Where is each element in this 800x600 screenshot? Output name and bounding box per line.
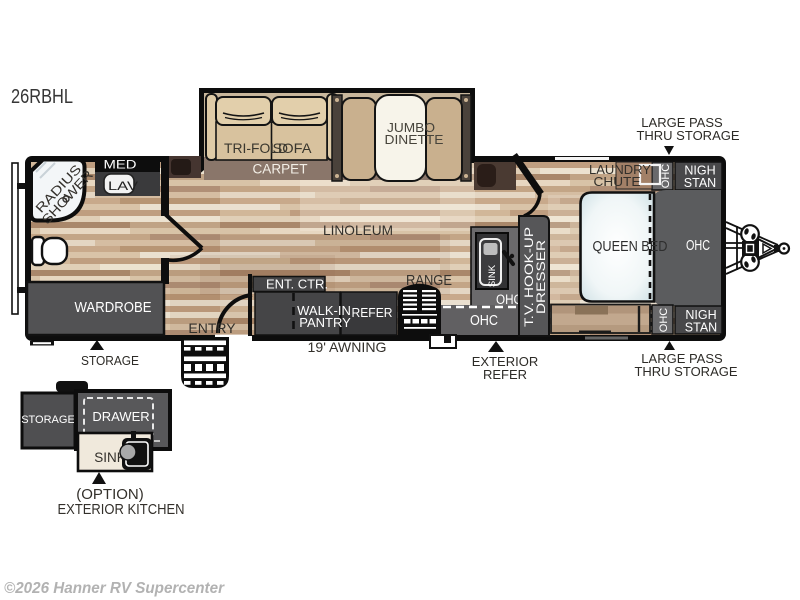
svg-text:SINK: SINK	[487, 264, 498, 287]
svg-text:QUEEN BED: QUEEN BED	[593, 239, 668, 255]
svg-text:OHC: OHC	[658, 308, 670, 333]
svg-text:REFER: REFER	[352, 305, 393, 320]
svg-text:©2026 Hanner RV Supercenter: ©2026 Hanner RV Supercenter	[4, 580, 225, 597]
svg-text:SOFA: SOFA	[273, 140, 313, 156]
svg-text:OHC: OHC	[470, 313, 498, 329]
svg-text:26RBHL: 26RBHL	[11, 86, 73, 108]
svg-text:DRESSER: DRESSER	[534, 240, 548, 314]
svg-text:THRU STORAGE: THRU STORAGE	[634, 364, 737, 379]
svg-text:STORAGE: STORAGE	[21, 414, 75, 426]
svg-text:ENTRY: ENTRY	[188, 320, 236, 336]
svg-text:PANTRY: PANTRY	[299, 315, 351, 330]
svg-text:STAN: STAN	[684, 176, 716, 190]
svg-text:19' AWNING: 19' AWNING	[308, 339, 387, 355]
svg-text:OHC: OHC	[660, 164, 672, 189]
svg-text:STORAGE: STORAGE	[81, 353, 139, 368]
svg-text:LINOLEUM: LINOLEUM	[323, 222, 393, 238]
svg-text:WARDROBE: WARDROBE	[75, 299, 152, 316]
svg-text:DRAWER: DRAWER	[92, 409, 149, 424]
svg-text:THRU STORAGE: THRU STORAGE	[636, 128, 739, 143]
svg-text:LAV: LAV	[108, 179, 138, 193]
svg-text:STAN: STAN	[685, 321, 717, 335]
svg-text:OHC: OHC	[686, 238, 710, 254]
svg-text:CARPET: CARPET	[253, 162, 308, 177]
svg-text:REFER: REFER	[483, 367, 527, 382]
svg-text:DINETTE: DINETTE	[385, 132, 444, 147]
svg-text:MED: MED	[104, 158, 137, 172]
svg-text:EXTERIOR KITCHEN: EXTERIOR KITCHEN	[58, 501, 185, 518]
svg-text:ENT. CTR.: ENT. CTR.	[266, 277, 328, 292]
svg-text:CHUTE: CHUTE	[594, 175, 641, 189]
